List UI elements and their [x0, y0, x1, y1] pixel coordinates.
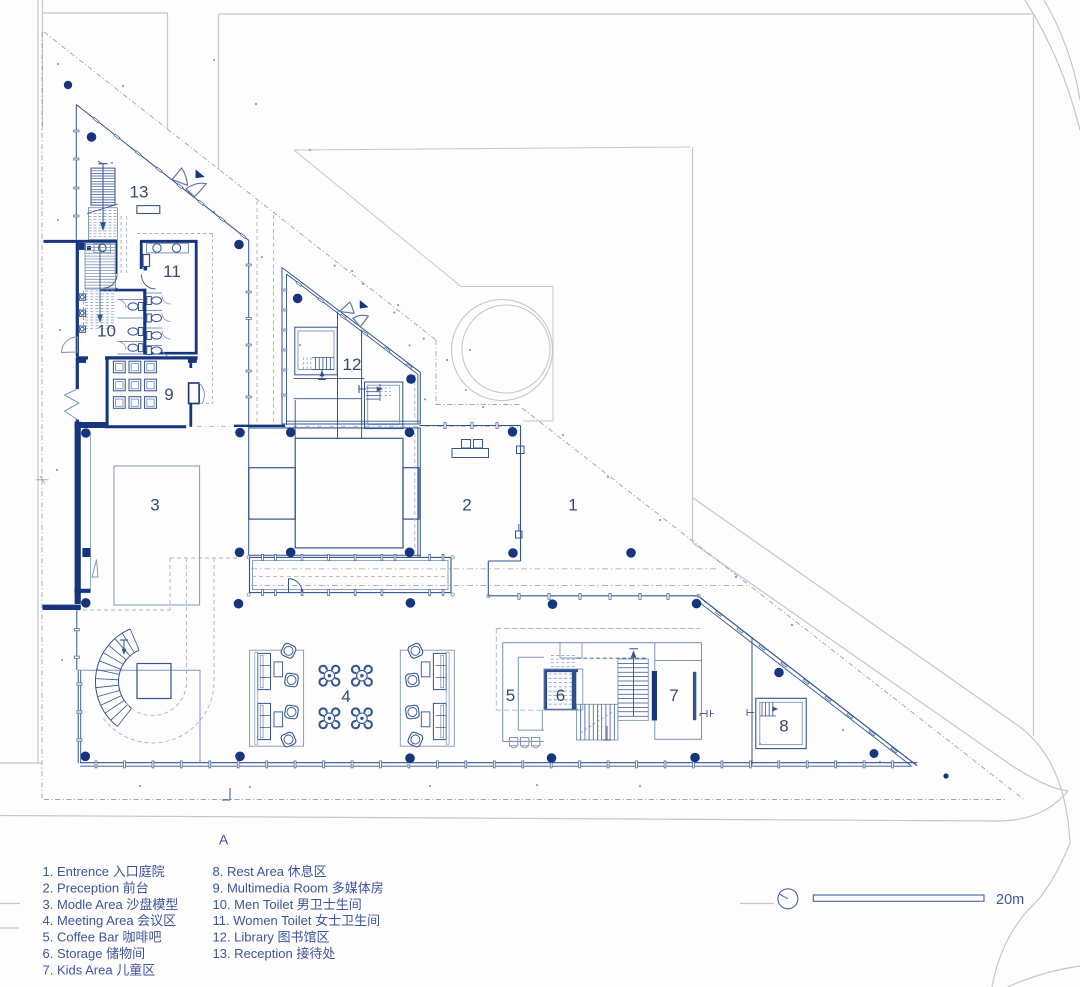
svg-text:5. Coffee Bar 咖啡吧: 5. Coffee Bar 咖啡吧: [43, 930, 162, 945]
svg-text:12. Library 图书馆区: 12. Library 图书馆区: [213, 930, 330, 945]
svg-text:2: 2: [462, 496, 471, 515]
svg-text:11. Women Toilet 女士卫生间: 11. Women Toilet 女士卫生间: [213, 913, 381, 928]
svg-text:A: A: [219, 832, 229, 848]
svg-text:3: 3: [150, 496, 159, 515]
svg-text:7. Kids Area 儿童区: 7. Kids Area 儿童区: [43, 962, 156, 977]
svg-text:1: 1: [568, 496, 577, 515]
svg-text:4. Meeting Area 会议区: 4. Meeting Area 会议区: [43, 913, 177, 928]
svg-text:20m: 20m: [996, 892, 1024, 908]
svg-text:9: 9: [164, 385, 173, 404]
svg-text:13. Reception 接待处: 13. Reception 接待处: [213, 946, 336, 961]
svg-text:12: 12: [343, 355, 362, 374]
svg-text:10. Men Toilet 男卫士生间: 10. Men Toilet 男卫士生间: [213, 897, 362, 912]
svg-text:9. Multimedia Room 多媒体房: 9. Multimedia Room 多媒体房: [213, 880, 384, 895]
svg-text:6: 6: [556, 686, 565, 705]
svg-text:5: 5: [506, 686, 515, 705]
svg-text:6. Storage 储物间: 6. Storage 储物间: [43, 946, 146, 961]
svg-text:11: 11: [163, 262, 181, 281]
svg-text:4: 4: [341, 687, 350, 706]
svg-text:8. Rest Area 休息区: 8. Rest Area 休息区: [213, 864, 327, 879]
svg-text:1. Entrence 入口庭院: 1. Entrence 入口庭院: [43, 864, 165, 879]
svg-text:7: 7: [669, 686, 678, 705]
svg-text:3. Modle Area 沙盘模型: 3. Modle Area 沙盘模型: [43, 897, 179, 912]
svg-text:8: 8: [779, 717, 788, 736]
svg-text:10: 10: [97, 322, 116, 341]
svg-text:13: 13: [130, 183, 149, 202]
svg-text:2. Preception 前台: 2. Preception 前台: [43, 880, 149, 895]
